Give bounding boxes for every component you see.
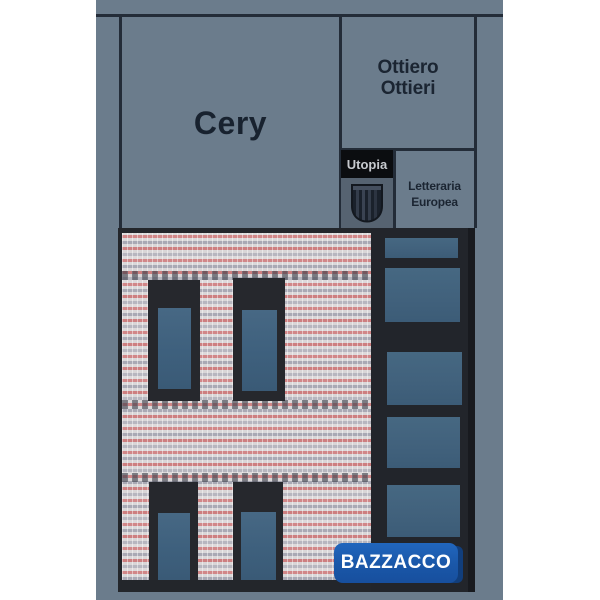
author-first-name: Ottiero <box>342 57 474 78</box>
author-name: Ottiero Ottieri <box>342 57 474 99</box>
bookseller-badge: BAZZACCO <box>334 543 458 583</box>
strip-window <box>387 485 460 537</box>
door-frame <box>233 482 283 580</box>
door-pane <box>158 513 190 580</box>
door-frame <box>149 482 198 580</box>
window-pane <box>242 310 277 391</box>
dark-building-strip <box>371 228 475 592</box>
cover-artwork-building <box>118 228 475 592</box>
book-cover: Cery Ottiero Ottieri Utopia Let <box>96 0 503 600</box>
strip-window <box>387 352 462 405</box>
strip-window <box>387 417 460 468</box>
publisher-logo-box <box>341 178 393 228</box>
publisher-shield-icon <box>350 183 384 223</box>
strip-window <box>385 268 460 322</box>
series-subtitle-box: Letteraria Europea <box>395 150 474 228</box>
book-title: Cery <box>122 95 339 151</box>
series-subtitle-line2: Europea <box>411 194 458 210</box>
series-name: Utopia <box>347 157 387 172</box>
series-name-box: Utopia <box>341 150 393 178</box>
series-subtitle-line1: Letteraria <box>408 178 461 194</box>
frame-line-right <box>474 14 477 228</box>
brick-facade <box>122 233 371 580</box>
brick-dash-band <box>122 473 371 482</box>
author-last-name: Ottieri <box>342 78 474 99</box>
frame-line-top <box>96 14 503 17</box>
door-pane <box>241 512 276 580</box>
bookseller-name: BAZZACCO <box>341 552 452 574</box>
window-frame <box>233 278 285 401</box>
strip-window <box>385 238 458 258</box>
window-frame <box>148 280 200 401</box>
window-pane <box>158 308 191 389</box>
brick-dash-band <box>122 400 371 409</box>
